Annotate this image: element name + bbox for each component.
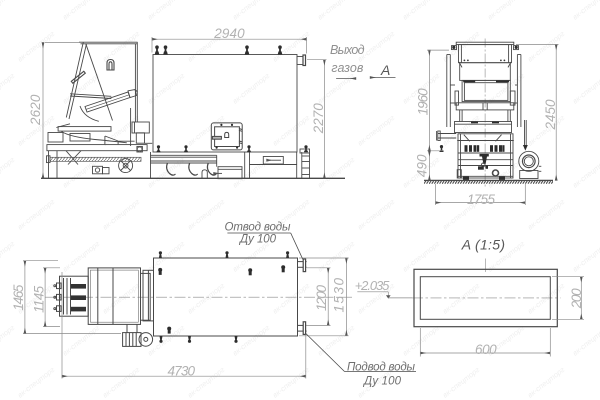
svg-text:вк-спецторг: вк-спецторг xyxy=(271,281,312,316)
svg-text:вк-спецторг: вк-спецторг xyxy=(146,239,187,274)
svg-text:Ду 100: Ду 100 xyxy=(238,234,277,246)
svg-text:вк-спецторг: вк-спецторг xyxy=(356,197,397,232)
svg-text:A: A xyxy=(380,62,390,78)
svg-text:вк-спецторг: вк-спецторг xyxy=(526,365,567,400)
svg-text:вк-спецторг: вк-спецторг xyxy=(186,113,227,148)
svg-text:1960: 1960 xyxy=(415,88,430,115)
svg-text:вк-спецторг: вк-спецторг xyxy=(231,71,272,106)
svg-text:вк-спецторг: вк-спецторг xyxy=(16,197,57,232)
svg-text:вк-спецторг: вк-спецторг xyxy=(61,0,102,22)
svg-text:вк-спецторг: вк-спецторг xyxy=(271,113,312,148)
svg-text:1465: 1465 xyxy=(11,284,26,310)
svg-text:вк-спецторг: вк-спецторг xyxy=(316,239,357,274)
svg-text:вк-спецторг: вк-спецторг xyxy=(101,365,142,400)
svg-text:Ду 100: Ду 100 xyxy=(362,376,402,388)
svg-text:4730: 4730 xyxy=(168,363,196,378)
svg-text:вк-спецторг: вк-спецторг xyxy=(271,365,312,400)
svg-text:вк-спецторг: вк-спецторг xyxy=(356,113,397,148)
svg-text:вк-спецторг: вк-спецторг xyxy=(0,0,17,22)
svg-text:1200: 1200 xyxy=(314,285,329,311)
svg-text:1755: 1755 xyxy=(467,192,495,207)
svg-text:вк-спецторг: вк-спецторг xyxy=(401,239,442,274)
svg-text:Отвод воды: Отвод воды xyxy=(225,222,292,234)
svg-text:вк-спецторг: вк-спецторг xyxy=(0,71,17,106)
svg-text:вк-спецторг: вк-спецторг xyxy=(101,197,142,232)
svg-text:2940: 2940 xyxy=(213,26,245,41)
svg-text:газов: газов xyxy=(331,61,363,75)
svg-text:вк-спецторг: вк-спецторг xyxy=(441,281,482,316)
svg-text:вк-спецторг: вк-спецторг xyxy=(146,71,187,106)
svg-text:A (1:5): A (1:5) xyxy=(461,237,505,253)
svg-text:вк-спецторг: вк-спецторг xyxy=(16,365,57,400)
svg-text:вк-спецторг: вк-спецторг xyxy=(571,323,600,358)
svg-text:вк-спецторг: вк-спецторг xyxy=(146,323,187,358)
svg-text:вк-спецторг: вк-спецторг xyxy=(316,323,357,358)
svg-text:вк-спецторг: вк-спецторг xyxy=(571,155,600,190)
svg-text:вк-спецторг: вк-спецторг xyxy=(526,197,567,232)
svg-text:вк-спецторг: вк-спецторг xyxy=(571,239,600,274)
svg-text:вк-спецторг: вк-спецторг xyxy=(16,29,57,64)
svg-text:вк-спецторг: вк-спецторг xyxy=(146,155,187,190)
svg-text:вк-спецторг: вк-спецторг xyxy=(526,29,567,64)
svg-text:вк-спецторг: вк-спецторг xyxy=(316,155,357,190)
svg-text:вк-спецторг: вк-спецторг xyxy=(526,281,567,316)
svg-text:+2.035: +2.035 xyxy=(355,278,390,293)
svg-text:вк-спецторг: вк-спецторг xyxy=(571,0,600,22)
svg-text:вк-спецторг: вк-спецторг xyxy=(316,71,357,106)
svg-text:2620: 2620 xyxy=(28,94,43,126)
svg-text:Выход: Выход xyxy=(330,43,365,57)
svg-text:1530: 1530 xyxy=(331,278,346,313)
svg-text:вк-спецторг: вк-спецторг xyxy=(401,0,442,22)
svg-text:2450: 2450 xyxy=(543,99,558,130)
svg-text:вк-спецторг: вк-спецторг xyxy=(401,323,442,358)
svg-text:вк-спецторг: вк-спецторг xyxy=(186,281,227,316)
svg-text:вк-спецторг: вк-спецторг xyxy=(316,0,357,22)
svg-text:вк-спецторг: вк-спецторг xyxy=(186,197,227,232)
svg-text:600: 600 xyxy=(475,342,497,357)
svg-text:вк-спецторг: вк-спецторг xyxy=(231,0,272,22)
svg-text:2270: 2270 xyxy=(311,103,326,134)
svg-text:вк-спецторг: вк-спецторг xyxy=(0,239,17,274)
svg-text:Подвод воды: Подвод воды xyxy=(347,362,416,374)
svg-text:вк-спецторг: вк-спецторг xyxy=(571,71,600,106)
svg-text:вк-спецторг: вк-спецторг xyxy=(61,323,102,358)
svg-text:вк-спецторг: вк-спецторг xyxy=(101,281,142,316)
svg-text:вк-спецторг: вк-спецторг xyxy=(486,0,527,22)
svg-text:вк-спецторг: вк-спецторг xyxy=(0,323,17,358)
svg-text:вк-спецторг: вк-спецторг xyxy=(146,0,187,22)
svg-text:вк-спецторг: вк-спецторг xyxy=(441,365,482,400)
svg-text:вк-спецторг: вк-спецторг xyxy=(231,155,272,190)
svg-text:вк-спецторг: вк-спецторг xyxy=(0,155,17,190)
svg-text:200: 200 xyxy=(569,288,584,309)
svg-text:1145: 1145 xyxy=(31,285,46,312)
svg-text:490: 490 xyxy=(415,154,430,177)
